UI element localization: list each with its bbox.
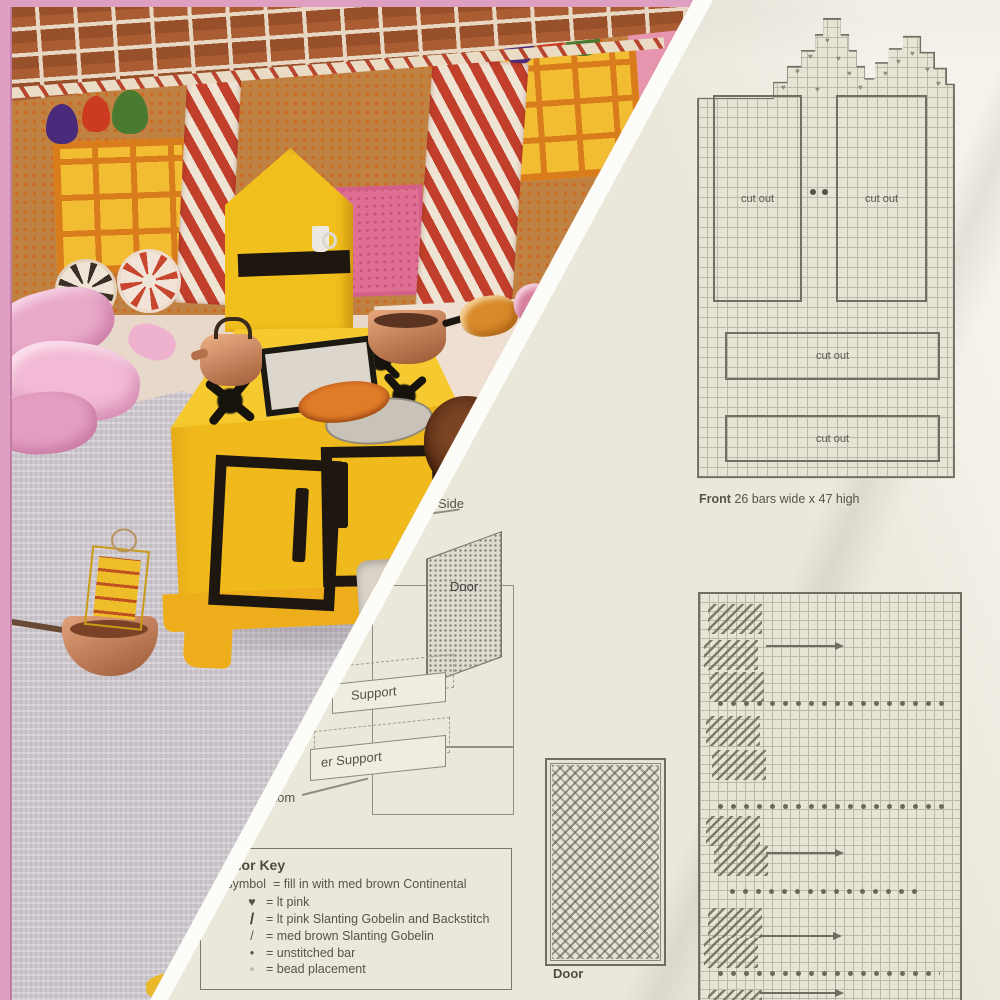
slash-stitches (706, 816, 760, 846)
heart-symbol: ♥ (795, 68, 800, 76)
cutout-slot-upper: cut out (725, 332, 940, 380)
cutout-label: cut out (741, 193, 774, 205)
cutout-label: cut out (865, 193, 898, 205)
direction-arrow (766, 852, 836, 854)
key-text: = lt pink (266, 895, 309, 909)
color-key-box: Color Key no symbol= fill in with med br… (200, 848, 512, 990)
slash-stitches (704, 938, 758, 968)
tiny-cup (312, 226, 329, 252)
key-text: = lt pink Slanting Gobelin and Backstitc… (266, 912, 489, 926)
heart-symbol: ♥ (883, 70, 888, 78)
heart-symbol: ♥ (896, 58, 901, 66)
direction-arrow (760, 992, 836, 994)
cutout-label: cut out (816, 433, 849, 445)
slash-symbol: / (245, 929, 259, 943)
candy-cane-column (415, 57, 528, 315)
cutout-window-right: cut out (836, 95, 927, 302)
unstitched-bar-row (726, 888, 922, 895)
slash-stitches (712, 750, 766, 780)
key-text: = unstitched bar (266, 946, 355, 960)
candy-window-left (53, 138, 194, 275)
stove-shelf (238, 250, 351, 277)
slash-stitches (710, 672, 764, 702)
front-chart-caption: Front 26 bars wide x 47 high (699, 492, 860, 506)
copper-kettle (200, 334, 262, 386)
heart-symbol: ♥ (847, 70, 852, 78)
bar-dot (822, 189, 828, 195)
recipe-tag (84, 545, 150, 631)
front-chart-caption-name: Front (699, 492, 731, 506)
key-entry: ♥= lt pink (245, 895, 309, 909)
heart-symbol: ♥ (925, 66, 930, 74)
key-entry: ◦= bead placement (245, 962, 366, 976)
heart-symbol: ♥ (858, 84, 863, 92)
slash-stitches (708, 908, 762, 938)
stove-leg-left (183, 613, 234, 669)
key-entry: /= lt pink Slanting Gobelin and Backstit… (245, 912, 489, 926)
cutout-window-left: cut out (713, 95, 802, 302)
heart-symbol: ♥ (808, 53, 813, 61)
photo-frame-top (0, 0, 700, 7)
slash-stitches (708, 990, 762, 1000)
direction-arrow (766, 645, 836, 647)
support-upper-label: Support (351, 683, 397, 703)
gumdrop-red (82, 96, 110, 132)
front-chart-caption-dims: 26 bars wide x 47 high (734, 492, 859, 506)
key-text: = fill in with med brown Continental (273, 877, 467, 891)
door-chart-label: Door (553, 966, 583, 981)
dot-symbol: • (245, 946, 259, 960)
key-text: = med brown Slanting Gobelin (266, 929, 434, 943)
key-entry: no symbol= fill in with med brown Contin… (209, 877, 466, 891)
color-key-title: Color Key (219, 857, 285, 873)
cutout-slot-lower: cut out (725, 415, 940, 462)
pot-opening (374, 313, 438, 328)
key-symbol: no symbol (209, 877, 266, 891)
door-chart (545, 758, 666, 966)
peppermint-candy (120, 252, 178, 310)
cutout-label: cut out (816, 350, 849, 362)
copper-pot (368, 310, 446, 364)
heart-symbol: ♥ (815, 86, 820, 94)
slash-stitches (706, 716, 760, 746)
front-chart-content: ♥ ♥ ♥ ♥ ♥ ♥ ♥ ♥ ♥ ♥ ♥ ♥ ♥ cut out cut ou… (695, 10, 957, 480)
heart-symbol: ♥ (910, 50, 915, 58)
bar-dot (810, 189, 816, 195)
kettle-handle (214, 317, 252, 339)
unstitched-bar-row (714, 803, 946, 810)
heart-symbol: ♥ (781, 84, 786, 92)
assembly-door-label: Door (450, 579, 478, 594)
heart-symbol: ♥ (245, 895, 259, 909)
slash-bold-symbol: / (243, 910, 261, 928)
unstitched-bar-row (714, 970, 940, 977)
stove-door-handle (336, 462, 348, 528)
key-entry: •= unstitched bar (245, 946, 355, 960)
slash-stitches (708, 604, 762, 634)
door-chart-stitches (552, 765, 659, 959)
bead-symbol: ◦ (245, 962, 259, 976)
key-entry: /= med brown Slanting Gobelin (245, 929, 434, 943)
support-lower-label: er Support (321, 749, 382, 770)
heart-symbol: ♥ (825, 37, 830, 45)
slash-stitches (704, 640, 758, 670)
photo-frame-left (0, 0, 12, 1000)
page: ♥ ♥ ♥ ♥ ♥ ♥ ♥ ♥ ♥ ♥ ♥ ♥ ♥ cut out cut ou… (0, 0, 1000, 1000)
direction-arrow (760, 935, 834, 937)
unstitched-bar-row (714, 700, 946, 707)
key-text: = bead placement (266, 962, 366, 976)
side-chart (698, 592, 962, 1000)
slash-stitches (714, 846, 768, 876)
heart-symbol: ♥ (836, 55, 841, 63)
heart-symbol: ♥ (936, 80, 941, 88)
cup-handle (322, 232, 337, 249)
